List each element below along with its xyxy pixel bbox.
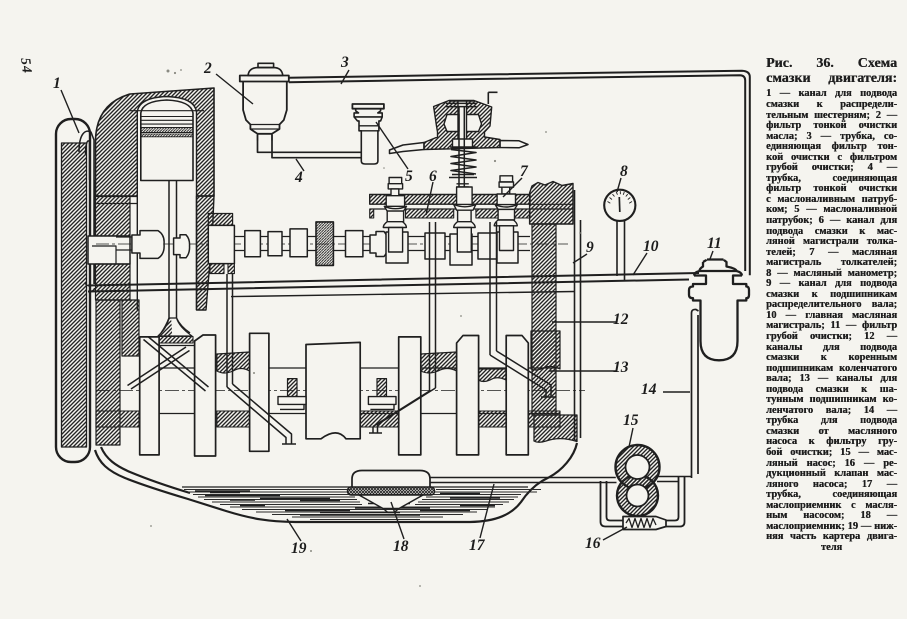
svg-text:15: 15	[623, 412, 639, 429]
svg-text:13: 13	[613, 359, 629, 376]
svg-text:7: 7	[520, 163, 529, 180]
svg-text:17: 17	[469, 537, 486, 554]
svg-text:9: 9	[586, 239, 594, 256]
svg-text:11: 11	[707, 235, 722, 252]
svg-text:12: 12	[613, 311, 629, 328]
svg-text:1: 1	[53, 75, 61, 92]
svg-text:10: 10	[643, 238, 659, 255]
svg-text:5: 5	[405, 168, 413, 185]
svg-text:19: 19	[291, 540, 307, 557]
svg-text:8: 8	[620, 163, 628, 180]
svg-text:14: 14	[641, 381, 657, 398]
svg-text:2: 2	[203, 60, 212, 77]
svg-text:4: 4	[294, 169, 303, 186]
svg-text:16: 16	[585, 535, 601, 552]
svg-text:3: 3	[340, 54, 349, 71]
svg-text:18: 18	[393, 538, 409, 555]
svg-text:6: 6	[429, 168, 437, 185]
